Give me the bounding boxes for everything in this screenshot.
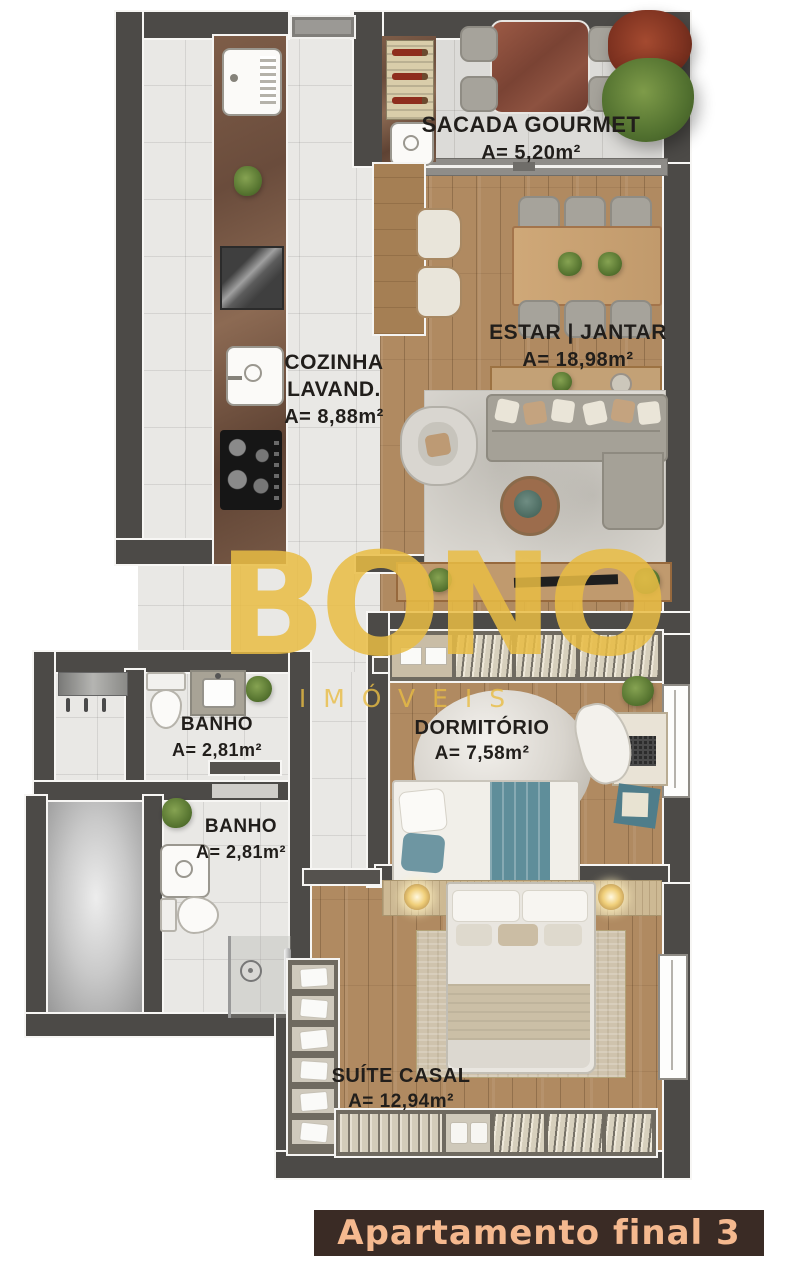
shelf-cell [292, 996, 334, 1020]
service-shaft-floor [44, 798, 148, 1020]
balcony-chair [460, 76, 498, 112]
shower-head-center [248, 968, 253, 973]
bed-pillow [452, 890, 520, 922]
single-bed-pillow-teal [400, 832, 445, 874]
coffee-table-plant [514, 490, 542, 518]
table-plant [598, 252, 622, 276]
room-name-line2: LAVAND. [284, 377, 384, 402]
sofa-pillow [494, 398, 520, 424]
folded-clothes [299, 1029, 329, 1051]
folded-clothes [299, 998, 329, 1019]
console-plant [552, 372, 572, 392]
bed-cushion [544, 924, 582, 946]
wardrobe-hanger-section [548, 1114, 602, 1152]
room-label-banho2: BANHO A= 2,81m² [196, 816, 286, 863]
armchair-pillow [424, 432, 451, 458]
apartment-title-bar: Apartamento final 3 [314, 1210, 764, 1256]
bath1-sliding-door [210, 762, 280, 774]
laundry-sink [222, 48, 282, 116]
floorplan-canvas: BONO IMÓVEIS SACADA GOURMET A= 5,20m² ES… [0, 0, 793, 1280]
sofa-pillow [610, 398, 635, 423]
apartment-title: Apartamento final 3 [337, 1213, 740, 1253]
room-area: A= 5,20m² [422, 141, 641, 165]
shelf-cell [292, 965, 334, 989]
kitchen-faucet [228, 376, 242, 380]
room-name: BANHO [196, 816, 286, 839]
wall-shaft-left [26, 796, 46, 1036]
shower-head [240, 960, 262, 982]
suite-window-mullion [671, 960, 673, 1070]
room-label-suite: SUÍTE CASAL A= 12,94m² [332, 1064, 471, 1114]
bar-chair [416, 208, 462, 260]
room-name-line1: COZINHA [284, 350, 384, 375]
room-area: A= 18,98m² [489, 348, 667, 372]
shelf-cell [292, 1027, 334, 1051]
wardrobe-hanger-section [606, 1114, 652, 1152]
cooktop-knobs [274, 440, 279, 500]
bed-cushion [456, 924, 492, 946]
toilet2-tank [160, 898, 177, 932]
bbq-sink-drain [403, 135, 419, 151]
folded-item [470, 1122, 488, 1144]
room-label-sacada: SACADA GOURMET A= 5,20m² [422, 112, 641, 165]
shower-area [231, 936, 291, 1018]
folded-clothes [299, 1122, 329, 1144]
bbq-skewer [392, 97, 428, 104]
room-name: BANHO [172, 714, 262, 737]
room-name: SUÍTE CASAL [332, 1064, 471, 1088]
balcony-chair [460, 26, 498, 62]
cooktop [220, 430, 282, 510]
wardrobe-hanger-section [494, 1114, 544, 1152]
room-area: A= 2,81m² [172, 740, 262, 762]
sofa-pillow [637, 401, 662, 426]
single-bed-pillow [398, 788, 448, 835]
kitchen-sink-drain [244, 364, 262, 382]
toilet2-bowl [177, 896, 219, 934]
sofa-seam [492, 430, 660, 432]
toilet-2 [160, 894, 218, 934]
coat-hook [102, 698, 106, 712]
wardrobe-shelf-section [446, 1114, 490, 1152]
pouf-sheet [622, 792, 649, 817]
bed-cushion [498, 924, 538, 946]
folded-clothes [299, 967, 328, 988]
room-label-dormitorio: DORMITÓRIO A= 7,58m² [415, 716, 550, 766]
bbq-skewer [392, 49, 428, 56]
washer [220, 246, 284, 310]
cooktop-burners [220, 430, 282, 510]
shelf-cell [292, 1120, 334, 1144]
shower-glass [228, 936, 231, 1018]
shelf-cell [292, 1058, 334, 1082]
kitchen-sink [226, 346, 284, 406]
wardrobe-rod-section [338, 1114, 442, 1152]
watermark-subtitle: IMÓVEIS [222, 684, 582, 713]
coat-hook [66, 698, 70, 712]
suite-window [658, 954, 688, 1080]
bath2-door-opening [212, 784, 278, 798]
shelf-cell [292, 1089, 334, 1113]
double-bed [446, 882, 596, 1074]
sofa-pillow [582, 400, 608, 426]
sofa-pillow [551, 399, 576, 424]
wall-balcony-divider [354, 12, 382, 166]
coat-hook [84, 698, 88, 712]
doormat [58, 672, 128, 696]
dining-table [512, 226, 662, 306]
folded-clothes [299, 1091, 329, 1112]
suite-shelving [288, 960, 338, 1154]
room-area: A= 12,94m² [332, 1091, 471, 1114]
room-label-banho1: BANHO A= 2,81m² [172, 714, 262, 761]
folded-item [450, 1122, 468, 1144]
watermark-brand: BONO [218, 550, 586, 662]
room-name: SACADA GOURMET [422, 112, 641, 138]
bedside-lamp [598, 884, 624, 910]
room-label-estar: ESTAR | JANTAR A= 18,98m² [489, 320, 667, 372]
suite-wardrobe [336, 1110, 656, 1156]
laundry-faucet [230, 74, 238, 82]
wall-entry-left [34, 652, 54, 800]
bed-runner [448, 984, 590, 1040]
bbq-grill [386, 40, 434, 120]
bbq-skewer [392, 73, 428, 80]
bedroom-pouf [613, 783, 660, 828]
room-area: A= 7,58m² [415, 743, 550, 766]
sofa-pillow [522, 400, 547, 425]
room-area: A= 8,88m² [284, 405, 384, 429]
table-plant [558, 252, 582, 276]
folded-clothes [299, 1060, 328, 1081]
room-name: ESTAR | JANTAR [489, 320, 667, 345]
room-name: DORMITÓRIO [415, 716, 550, 740]
bedroom-window-mullion [674, 690, 676, 788]
laundry-sink-drainboard [260, 56, 276, 104]
room-label-cozinha: COZINHA LAVAND. A= 8,88m² [284, 350, 384, 429]
room-area: A= 2,81m² [196, 842, 286, 864]
wall-entry-bath1-divider [126, 670, 144, 786]
armchair [400, 406, 478, 486]
bar-chair [416, 266, 462, 318]
bedside-lamp [404, 884, 430, 910]
single-bed [392, 780, 580, 888]
wall-kitchen-bottom-step [116, 540, 218, 564]
sofa-chaise [602, 452, 664, 530]
service-door [290, 15, 356, 39]
single-bed-blanket [490, 782, 550, 882]
balcony-table [492, 22, 588, 112]
bath2-sink-drain [175, 860, 193, 878]
suite-sliding-door [304, 870, 380, 884]
wall-kitchen-left [116, 12, 142, 564]
bed-pillow [522, 890, 588, 922]
